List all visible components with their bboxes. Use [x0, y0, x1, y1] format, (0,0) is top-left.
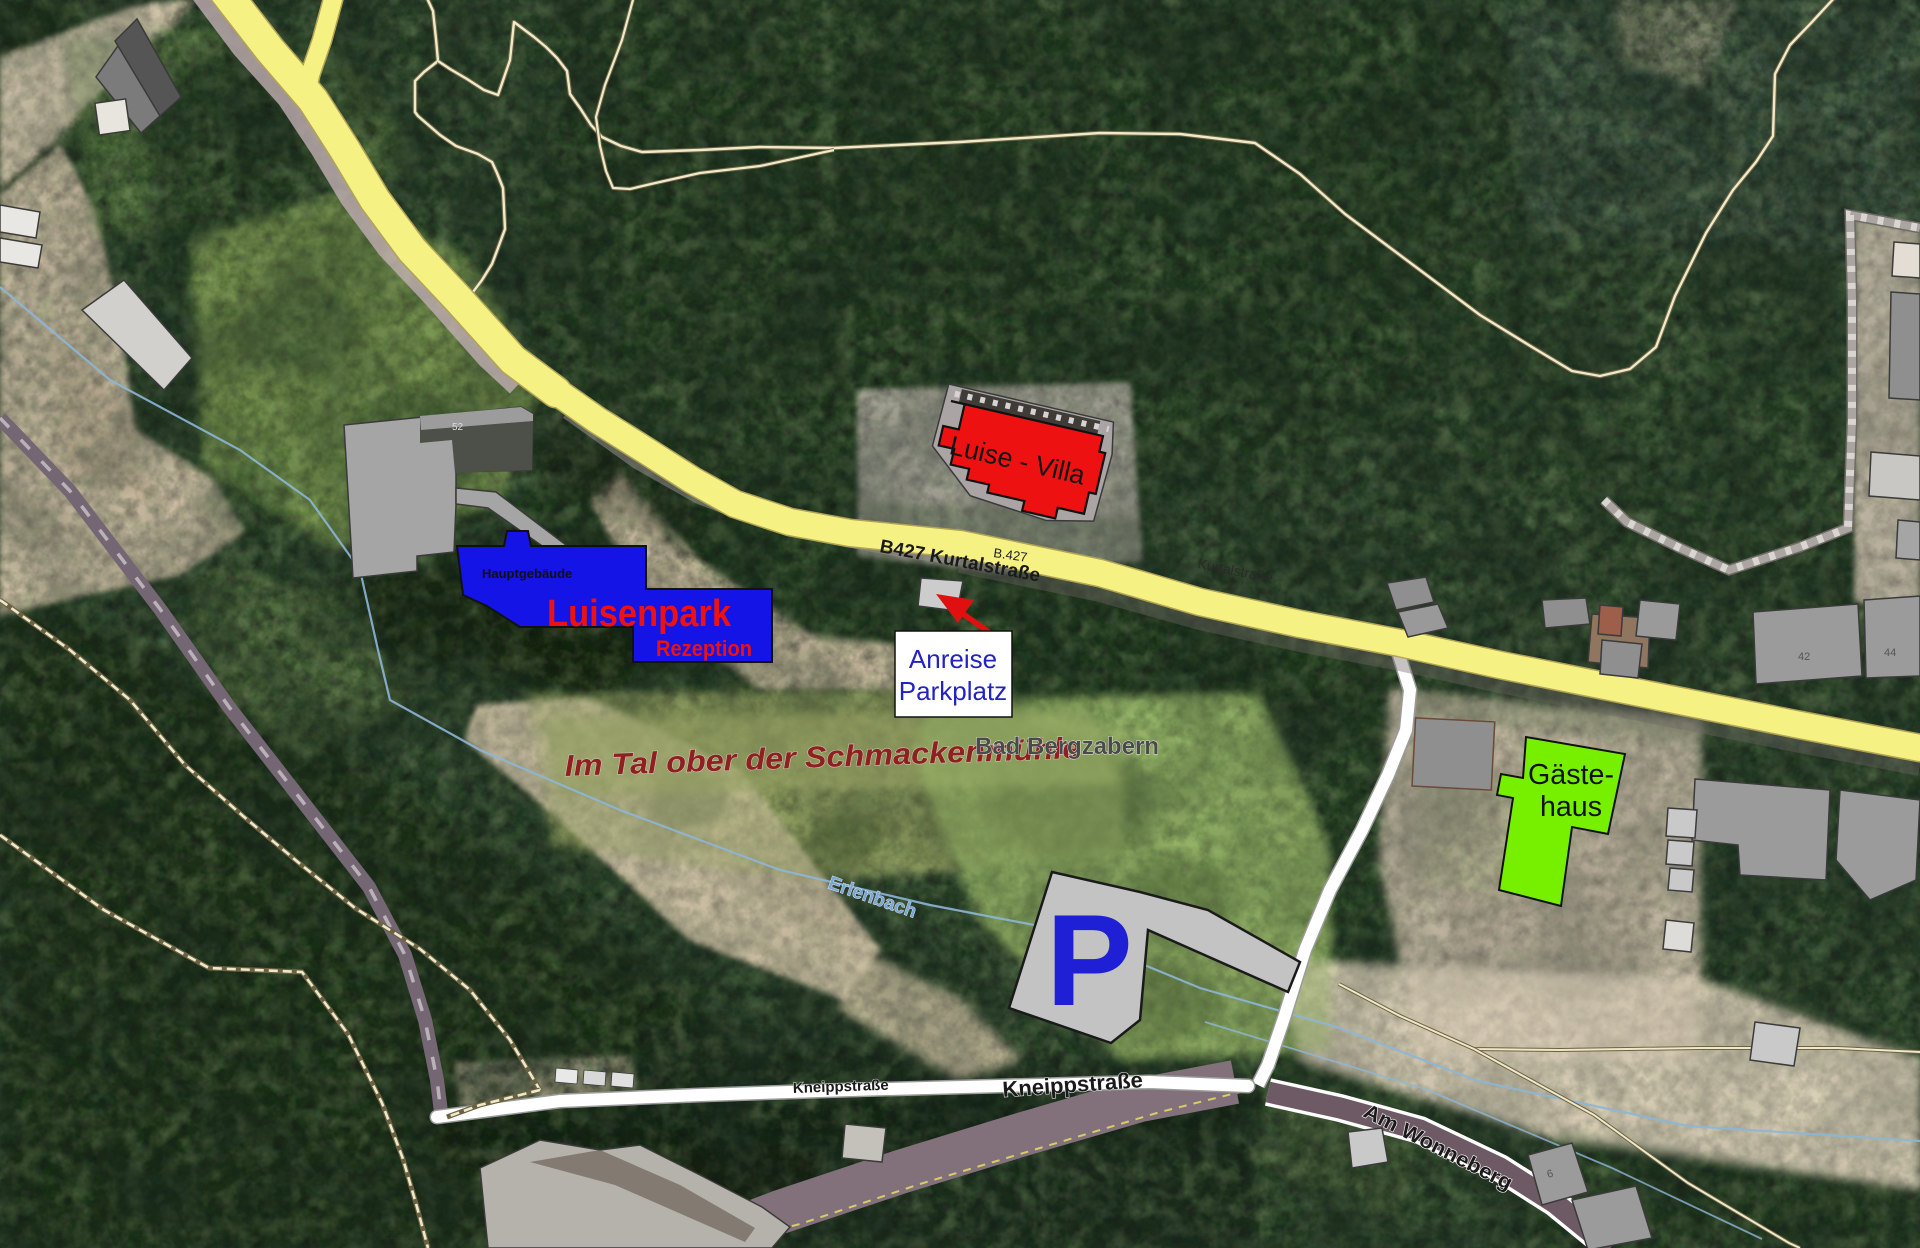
svg-text:44: 44	[1884, 647, 1896, 659]
svg-text:haus: haus	[1540, 791, 1602, 823]
svg-text:Luisenpark: Luisenpark	[547, 593, 732, 635]
svg-text:P: P	[1046, 887, 1133, 1033]
svg-text:Kneippstraße: Kneippstraße	[793, 1077, 889, 1097]
svg-text:42: 42	[1798, 651, 1810, 663]
svg-text:Rezeption: Rezeption	[656, 636, 752, 661]
svg-text:Anreise: Anreise	[909, 644, 997, 674]
svg-text:52: 52	[452, 422, 464, 433]
svg-text:Parkplatz: Parkplatz	[899, 676, 1007, 706]
svg-text:Gäste-: Gäste-	[1528, 759, 1614, 791]
svg-text:Hauptgebäude: Hauptgebäude	[482, 566, 572, 581]
svg-text:Bad Bergzabern: Bad Bergzabern	[975, 733, 1159, 760]
